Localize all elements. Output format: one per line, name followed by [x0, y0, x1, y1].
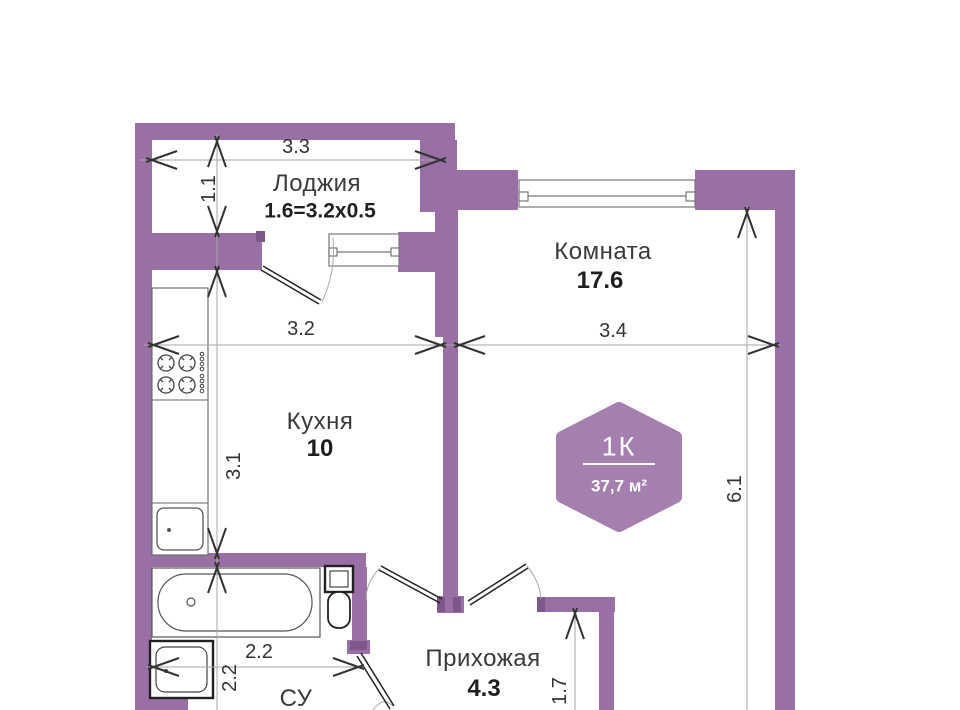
floor-plan-drawing [0, 0, 960, 710]
apartment-badge-hexagon [562, 408, 676, 526]
wall [599, 597, 614, 710]
door-jamb [350, 641, 367, 650]
wall [775, 170, 795, 710]
wall [398, 232, 435, 272]
wall [435, 210, 458, 337]
bathroom-door [357, 653, 394, 710]
room-label: Комната [554, 240, 651, 264]
dim-kitchen-width: 3.2 [287, 319, 315, 339]
badge-room-count: 1К [602, 434, 637, 461]
dim-bathroom-height: 2.2 [220, 664, 240, 692]
dim-room-height: 6.1 [725, 475, 745, 503]
loggia-window [329, 234, 399, 266]
floor-plan: Лоджия 1.6=3.2x0.5 Комната 17.6 Кухня 10… [0, 0, 960, 710]
room-door [468, 564, 541, 605]
badge-divider [583, 463, 655, 465]
wall [457, 170, 518, 210]
hallway-area: 4.3 [467, 677, 500, 701]
dim-loggia-depth: 1.1 [199, 175, 219, 203]
dim-hallway-height: 1.7 [550, 677, 570, 705]
wall [135, 233, 262, 270]
door-jamb [453, 597, 461, 612]
kitchen-area: 10 [307, 437, 334, 461]
loggia-label: Лоджия [273, 172, 361, 196]
dim-loggia-width: 3.3 [282, 137, 310, 157]
dim-kitchen-height: 3.1 [224, 452, 244, 480]
balcony-door [261, 238, 334, 304]
kitchen-door [366, 566, 442, 603]
wall [420, 140, 457, 212]
wall [352, 567, 367, 643]
room-area: 17.6 [577, 269, 624, 293]
dim-bathroom-width: 2.2 [245, 642, 273, 662]
bathroom-label: СУ [280, 687, 313, 710]
kitchen-label: Кухня [287, 410, 354, 434]
door-jamb [256, 231, 265, 242]
loggia-size: 1.6=3.2x0.5 [264, 201, 376, 222]
toilet [325, 566, 353, 628]
wall [135, 123, 152, 710]
badge-area: 37,7 м² [591, 478, 647, 495]
bathtub [152, 568, 320, 637]
hallway-label: Прихожая [425, 647, 540, 671]
kitchen-sink [157, 508, 203, 550]
room-window [519, 180, 695, 207]
wall [443, 336, 458, 600]
door-jamb [537, 597, 545, 612]
dim-room-width: 3.4 [599, 321, 627, 341]
